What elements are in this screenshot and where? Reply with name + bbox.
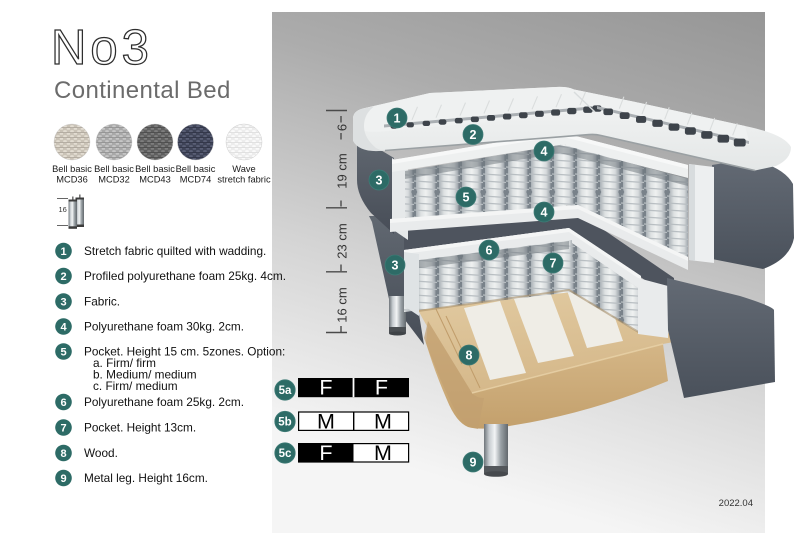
svg-text:No3: No3 bbox=[51, 21, 153, 75]
svg-text:Polyurethane foam 30kg. 2cm.: Polyurethane foam 30kg. 2cm. bbox=[84, 320, 244, 334]
svg-text:3: 3 bbox=[60, 296, 66, 308]
svg-text:1: 1 bbox=[60, 246, 66, 258]
svg-text:8: 8 bbox=[60, 448, 66, 460]
svg-text:MCD74: MCD74 bbox=[180, 175, 212, 185]
svg-text:Bell basic: Bell basic bbox=[135, 164, 175, 174]
svg-text:6: 6 bbox=[60, 397, 66, 409]
svg-text:Bell basic: Bell basic bbox=[94, 164, 134, 174]
svg-text:Metal leg. Height 16cm.: Metal leg. Height 16cm. bbox=[84, 471, 208, 485]
svg-text:Polyurethane foam 25kg. 2cm.: Polyurethane foam 25kg. 2cm. bbox=[84, 395, 244, 409]
svg-text:c. Firm/ medium: c. Firm/ medium bbox=[93, 379, 178, 393]
svg-text:Pocket. Height 13cm.: Pocket. Height 13cm. bbox=[84, 421, 196, 435]
svg-text:Wood.: Wood. bbox=[84, 446, 118, 460]
svg-text:5c: 5c bbox=[279, 448, 292, 460]
svg-text:23 cm: 23 cm bbox=[334, 223, 349, 258]
svg-text:5a: 5a bbox=[279, 385, 292, 397]
svg-text:2: 2 bbox=[60, 271, 66, 283]
svg-text:5b: 5b bbox=[278, 417, 291, 429]
svg-text:7: 7 bbox=[60, 422, 66, 434]
svg-text:Profiled polyurethane foam 25k: Profiled polyurethane foam 25kg. 4cm. bbox=[84, 269, 286, 283]
svg-text:Wave: Wave bbox=[232, 164, 255, 174]
svg-text:stretch fabric: stretch fabric bbox=[217, 175, 271, 185]
svg-text:9: 9 bbox=[60, 473, 66, 485]
svg-text:16: 16 bbox=[59, 205, 67, 214]
svg-text:4: 4 bbox=[541, 205, 548, 219]
svg-text:6: 6 bbox=[486, 243, 493, 257]
svg-text:5: 5 bbox=[463, 190, 470, 204]
svg-text:Stretch fabric quilted with wa: Stretch fabric quilted with wadding. bbox=[84, 244, 266, 258]
svg-text:7: 7 bbox=[550, 256, 557, 270]
svg-text:9: 9 bbox=[470, 455, 477, 469]
svg-text:MCD32: MCD32 bbox=[98, 175, 130, 185]
svg-text:M: M bbox=[317, 409, 335, 433]
svg-text:Bell basic: Bell basic bbox=[52, 164, 92, 174]
svg-text:2: 2 bbox=[470, 128, 477, 142]
svg-text:4: 4 bbox=[541, 144, 548, 158]
svg-text:4: 4 bbox=[60, 321, 67, 333]
svg-text:3: 3 bbox=[392, 258, 399, 272]
svg-text:5: 5 bbox=[60, 346, 66, 358]
svg-text:Fabric.: Fabric. bbox=[84, 295, 120, 309]
svg-text:1: 1 bbox=[394, 111, 401, 125]
svg-text:MCD43: MCD43 bbox=[139, 175, 171, 185]
svg-text:F: F bbox=[375, 376, 388, 400]
svg-text:MCD36: MCD36 bbox=[56, 175, 88, 185]
svg-text:8: 8 bbox=[466, 348, 473, 362]
svg-text:Continental Bed: Continental Bed bbox=[54, 77, 231, 104]
svg-text:6: 6 bbox=[334, 124, 349, 131]
svg-text:M: M bbox=[374, 409, 392, 433]
svg-text:Bell basic: Bell basic bbox=[176, 164, 216, 174]
svg-text:3: 3 bbox=[376, 173, 383, 187]
svg-text:F: F bbox=[319, 376, 332, 400]
svg-text:16 cm: 16 cm bbox=[334, 287, 349, 322]
svg-text:2022.04: 2022.04 bbox=[719, 498, 753, 509]
svg-text:F: F bbox=[319, 441, 332, 465]
svg-text:19 cm: 19 cm bbox=[334, 153, 349, 188]
svg-text:M: M bbox=[374, 441, 392, 465]
